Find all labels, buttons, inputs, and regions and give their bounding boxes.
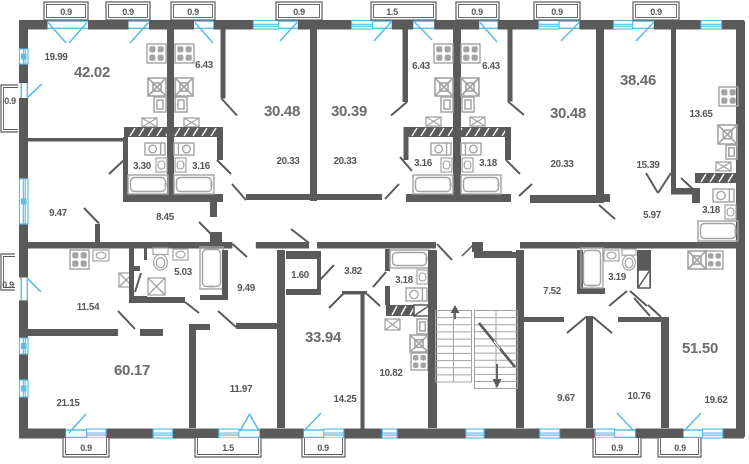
svg-text:3.16: 3.16 — [192, 161, 211, 172]
svg-text:0.9: 0.9 — [317, 443, 329, 453]
svg-text:19.99: 19.99 — [44, 52, 68, 63]
svg-text:38.46: 38.46 — [620, 72, 656, 89]
svg-text:9.49: 9.49 — [237, 283, 256, 294]
svg-text:19.62: 19.62 — [704, 395, 728, 406]
svg-text:0.9: 0.9 — [2, 280, 14, 290]
svg-text:60.17: 60.17 — [114, 362, 150, 379]
svg-text:0.9: 0.9 — [611, 443, 623, 453]
svg-text:1.5: 1.5 — [222, 443, 234, 453]
svg-text:6.43: 6.43 — [195, 60, 214, 71]
svg-text:3.30: 3.30 — [133, 161, 152, 172]
svg-text:14.25: 14.25 — [333, 394, 357, 405]
svg-text:3.19: 3.19 — [608, 272, 627, 283]
svg-text:8.45: 8.45 — [156, 212, 175, 223]
svg-text:3.16: 3.16 — [414, 158, 433, 169]
svg-text:0.9: 0.9 — [293, 7, 305, 17]
svg-text:3.82: 3.82 — [344, 266, 363, 277]
svg-text:0.9: 0.9 — [122, 7, 134, 17]
svg-text:30.48: 30.48 — [550, 105, 586, 122]
svg-text:11.97: 11.97 — [230, 384, 253, 395]
svg-text:0.9: 0.9 — [60, 7, 72, 17]
svg-text:20.33: 20.33 — [550, 159, 574, 170]
svg-text:7.52: 7.52 — [543, 286, 562, 297]
svg-text:0.9: 0.9 — [80, 443, 92, 453]
svg-text:11.54: 11.54 — [77, 302, 100, 313]
svg-text:33.94: 33.94 — [305, 329, 342, 346]
svg-text:0.9: 0.9 — [650, 7, 662, 17]
svg-text:15.39: 15.39 — [636, 160, 660, 171]
svg-text:5.97: 5.97 — [643, 210, 662, 221]
svg-text:0.9: 0.9 — [471, 7, 483, 17]
svg-text:5.03: 5.03 — [174, 267, 193, 278]
svg-text:3.18: 3.18 — [702, 205, 721, 216]
svg-text:13.65: 13.65 — [689, 109, 713, 120]
svg-text:9.67: 9.67 — [557, 393, 576, 404]
svg-text:21.15: 21.15 — [56, 398, 80, 409]
svg-text:51.50: 51.50 — [682, 340, 718, 357]
svg-text:9.47: 9.47 — [49, 208, 68, 219]
svg-text:3.18: 3.18 — [395, 275, 414, 286]
svg-text:0.9: 0.9 — [674, 443, 686, 453]
svg-text:30.48: 30.48 — [264, 103, 300, 120]
svg-text:0.9: 0.9 — [187, 7, 199, 17]
svg-text:10.82: 10.82 — [379, 368, 403, 379]
svg-text:20.33: 20.33 — [333, 156, 357, 167]
svg-text:10.76: 10.76 — [627, 391, 651, 402]
svg-text:1.5: 1.5 — [386, 7, 398, 17]
svg-text:20.33: 20.33 — [276, 156, 300, 167]
svg-text:1.60: 1.60 — [291, 270, 310, 281]
svg-text:30.39: 30.39 — [331, 103, 367, 120]
svg-text:6.43: 6.43 — [412, 61, 431, 72]
svg-text:6.43: 6.43 — [482, 61, 501, 72]
svg-text:3.18: 3.18 — [479, 158, 498, 169]
svg-text:42.02: 42.02 — [74, 64, 110, 81]
svg-text:0.9: 0.9 — [551, 7, 563, 17]
svg-text:0.9: 0.9 — [4, 96, 16, 106]
